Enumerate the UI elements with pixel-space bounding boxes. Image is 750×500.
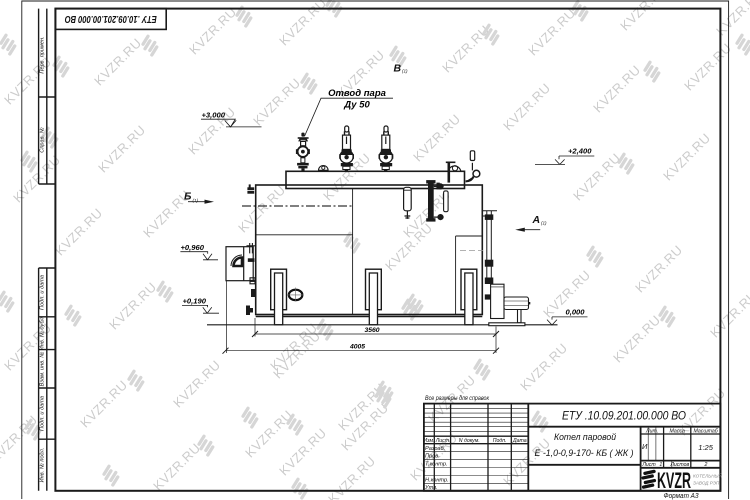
svg-text:В: В: [394, 63, 402, 75]
svg-text:Масса: Масса: [670, 428, 685, 434]
svg-text:KVZR.RU: KVZR.RU: [610, 312, 663, 365]
svg-text:KVZR.RU: KVZR.RU: [170, 357, 223, 410]
svg-text:KVZR.RU: KVZR.RU: [617, 0, 670, 34]
svg-text:KVZR.RU: KVZR.RU: [500, 80, 553, 133]
svg-text:ЕТУ .10.09.201.00.000 ВО: ЕТУ .10.09.201.00.000 ВО: [65, 13, 157, 25]
svg-text:0,000: 0,000: [566, 308, 586, 317]
svg-text:Все размеры для справок: Все размеры для справок: [425, 394, 490, 402]
svg-text:Дата: Дата: [512, 438, 527, 444]
svg-text:KVZR.RU: KVZR.RU: [250, 75, 303, 128]
svg-text:Подп.: Подп.: [493, 438, 507, 444]
svg-text:KVZR.RU: KVZR.RU: [660, 130, 713, 183]
svg-text:KVZR.RU: KVZR.RU: [517, 340, 570, 393]
svg-text:Инв. № дубл.: Инв. № дубл.: [40, 316, 46, 350]
svg-text:KVZR.RU: KVZR.RU: [91, 35, 144, 88]
svg-text:3560: 3560: [364, 327, 379, 334]
svg-text:(1): (1): [402, 69, 408, 74]
svg-text:Подп. и дата: Подп. и дата: [40, 396, 46, 431]
svg-text:KVZR.RU: KVZR.RU: [52, 205, 105, 258]
svg-text:KVZR.RU: KVZR.RU: [186, 4, 239, 57]
svg-text:Справ. №: Справ. №: [40, 127, 46, 152]
svg-text:ЗАВОД РЭП: ЗАВОД РЭП: [693, 481, 720, 486]
svg-text:Лист: Лист: [435, 438, 450, 444]
svg-text:1:25: 1:25: [698, 443, 713, 452]
svg-text:Пров.: Пров.: [425, 454, 440, 460]
svg-text:И: И: [642, 442, 648, 451]
svg-text:Разраб.: Разраб.: [425, 446, 445, 452]
svg-text:(1): (1): [193, 198, 199, 203]
svg-text:Отвод пара: Отвод пара: [328, 88, 386, 99]
svg-text:Т.контр.: Т.контр.: [425, 462, 448, 468]
svg-text:Подп. и дата: Подп. и дата: [40, 275, 46, 310]
svg-text:KVZR.RU: KVZR.RU: [150, 440, 203, 493]
svg-text:KVZR.RU: KVZR.RU: [681, 40, 734, 93]
svg-text:+2,400: +2,400: [568, 146, 592, 155]
svg-text:А: А: [532, 214, 541, 226]
svg-text:Инв. № подл.: Инв. № подл.: [40, 448, 46, 483]
svg-text:KVZR.RU: KVZR.RU: [276, 425, 329, 478]
svg-text:KVZR.RU: KVZR.RU: [95, 122, 148, 175]
svg-text:КОТЕЛЬНЫЙ: КОТЕЛЬНЫЙ: [693, 472, 723, 479]
svg-text:KVZR.RU: KVZR.RU: [590, 62, 643, 115]
svg-text:ЕТУ .10.09.201.00.000 ВО: ЕТУ .10.09.201.00.000 ВО: [562, 408, 686, 422]
svg-text:Б: Б: [184, 191, 192, 203]
svg-text:+0,960: +0,960: [181, 243, 205, 252]
svg-text:KVZR.RU: KVZR.RU: [713, 0, 750, 39]
svg-text:Котел паровой: Котел паровой: [554, 432, 617, 443]
svg-text:KVZR.RU: KVZR.RU: [632, 242, 685, 295]
svg-text:Изм.: Изм.: [423, 438, 434, 444]
svg-text:KVZR.RU: KVZR.RU: [570, 150, 623, 203]
svg-text:Е -1,0-0,9-170- КБ ( ЖК ): Е -1,0-0,9-170- КБ ( ЖК ): [535, 448, 634, 459]
svg-text:KVZR.RU: KVZR.RU: [276, 0, 329, 49]
svg-text:+0,190: +0,190: [183, 296, 207, 305]
svg-text:Лит.: Лит.: [645, 428, 658, 434]
svg-text:Утв.: Утв.: [424, 485, 438, 491]
svg-text:2: 2: [704, 462, 708, 468]
svg-text:KVZR.RU: KVZR.RU: [77, 377, 130, 430]
svg-text:4005: 4005: [349, 344, 365, 351]
svg-text:Н.контр.: Н.контр.: [425, 478, 449, 484]
svg-text:KVZR.RU: KVZR.RU: [106, 279, 159, 332]
svg-text:KVZR.RU: KVZR.RU: [325, 453, 378, 500]
svg-text:(1): (1): [541, 221, 547, 226]
svg-text:KVZR.RU: KVZR.RU: [410, 111, 463, 164]
svg-text:Лист: Лист: [641, 462, 656, 468]
svg-text:Взам. инв. №: Взам. инв. №: [40, 352, 46, 387]
svg-text:Перв. примен.: Перв. примен.: [40, 36, 46, 73]
svg-text:KVZR: KVZR: [657, 468, 691, 493]
svg-text:Масштаб: Масштаб: [693, 428, 718, 434]
svg-text:+3,000: +3,000: [202, 110, 226, 119]
svg-text:Ду 50: Ду 50: [343, 100, 370, 111]
svg-text:KVZR.RU: KVZR.RU: [235, 182, 288, 235]
svg-text:KVZR.RU: KVZR.RU: [525, 5, 578, 58]
svg-text:N докум.: N докум.: [459, 438, 480, 444]
